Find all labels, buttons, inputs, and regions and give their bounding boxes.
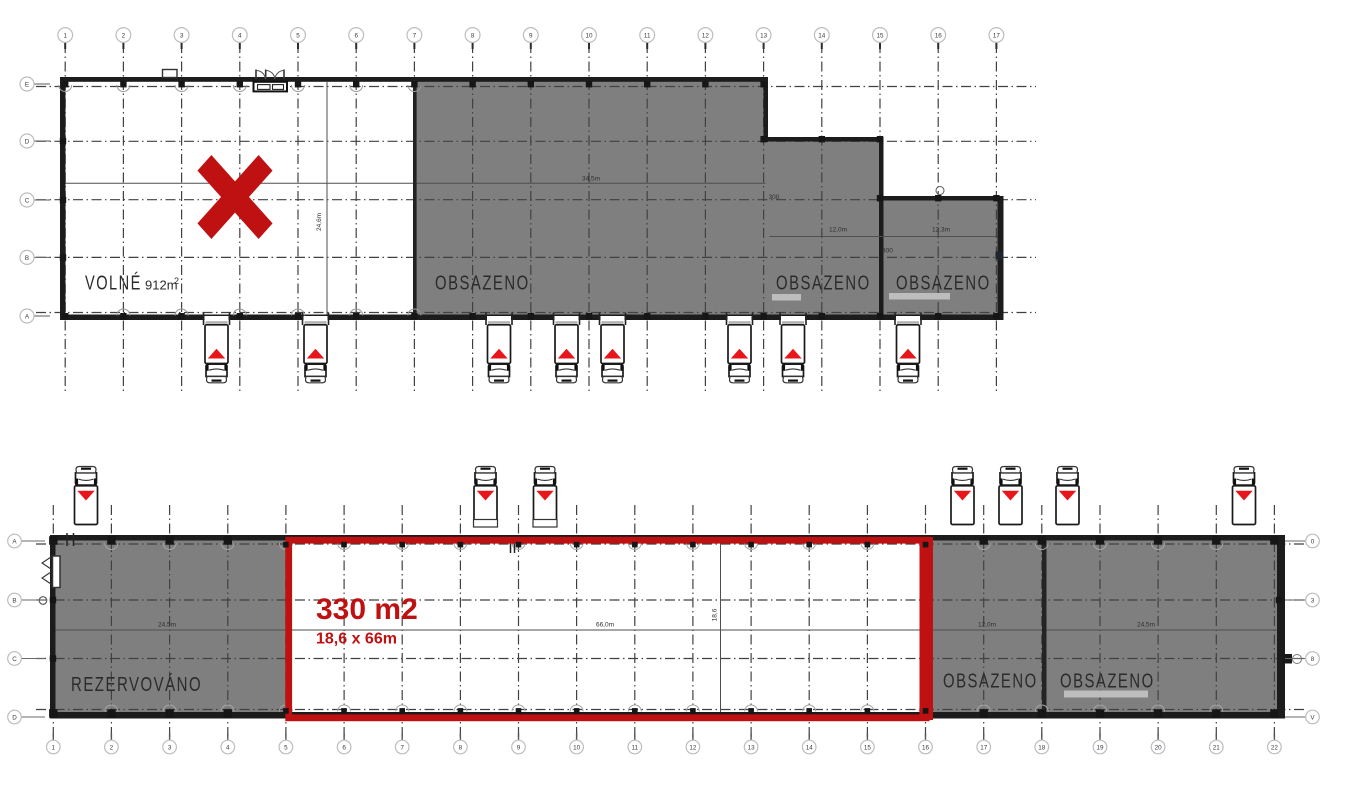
svg-text:8: 8 <box>1311 656 1315 663</box>
svg-text:6: 6 <box>354 33 358 40</box>
svg-text:15: 15 <box>876 33 884 40</box>
svg-text:300: 300 <box>769 194 780 201</box>
svg-text:13: 13 <box>748 745 756 752</box>
svg-text:20: 20 <box>1155 745 1163 752</box>
svg-text:24,5m: 24,5m <box>1137 622 1155 629</box>
svg-text:13: 13 <box>760 33 768 40</box>
svg-text:14: 14 <box>806 745 814 752</box>
svg-text:8: 8 <box>471 33 475 40</box>
svg-text:3: 3 <box>1311 598 1315 605</box>
svg-text:3: 3 <box>168 745 172 752</box>
svg-text:7: 7 <box>413 33 417 40</box>
svg-text:10: 10 <box>573 745 581 752</box>
svg-text:12,3m: 12,3m <box>932 227 950 234</box>
svg-text:17: 17 <box>993 33 1001 40</box>
svg-text:16: 16 <box>922 745 930 752</box>
svg-text:5: 5 <box>296 33 300 40</box>
svg-text:OBSAZENO: OBSAZENO <box>896 271 991 294</box>
svg-text:4: 4 <box>226 745 230 752</box>
svg-text:D: D <box>12 715 17 722</box>
svg-text:VOLNÉ: VOLNÉ <box>85 271 142 294</box>
svg-text:REZERVOVÁNO: REZERVOVÁNO <box>71 673 202 696</box>
svg-text:912m: 912m <box>145 278 178 293</box>
svg-text:16: 16 <box>935 33 943 40</box>
svg-text:9: 9 <box>529 33 533 40</box>
svg-text:15: 15 <box>864 745 872 752</box>
svg-text:10: 10 <box>585 33 593 40</box>
svg-text:D: D <box>25 139 30 146</box>
svg-text:22: 22 <box>1271 745 1279 752</box>
svg-text:2: 2 <box>174 276 179 286</box>
svg-text:6: 6 <box>342 745 346 752</box>
svg-text:12: 12 <box>702 33 710 40</box>
svg-text:9: 9 <box>517 745 521 752</box>
svg-text:5: 5 <box>284 745 288 752</box>
svg-text:14: 14 <box>818 33 826 40</box>
svg-text:34,5m: 34,5m <box>582 176 600 183</box>
svg-text:1: 1 <box>63 33 67 40</box>
svg-text:11: 11 <box>632 745 639 752</box>
svg-text:12,0m: 12,0m <box>978 622 996 629</box>
svg-text:300: 300 <box>882 248 893 255</box>
svg-text:C: C <box>12 656 17 663</box>
svg-text:E: E <box>25 82 29 89</box>
svg-text:B: B <box>25 255 29 262</box>
svg-text:OBSAZENO: OBSAZENO <box>776 271 871 294</box>
svg-text:66,0m: 66,0m <box>596 622 614 629</box>
svg-text:17: 17 <box>980 745 988 752</box>
svg-text:18,6 x 66m: 18,6 x 66m <box>316 631 397 648</box>
svg-text:OBSAZENO: OBSAZENO <box>1060 669 1155 692</box>
svg-text:330 m2: 330 m2 <box>316 593 418 626</box>
svg-text:3: 3 <box>180 33 184 40</box>
svg-text:18: 18 <box>1038 745 1046 752</box>
svg-text:24,5m: 24,5m <box>158 622 176 629</box>
svg-text:12,0m: 12,0m <box>829 227 847 234</box>
svg-text:OBSAZENO: OBSAZENO <box>943 669 1038 692</box>
svg-text:18,6: 18,6 <box>712 608 719 621</box>
svg-text:21: 21 <box>1213 745 1221 752</box>
svg-text:C: C <box>25 198 30 205</box>
svg-text:2: 2 <box>110 745 114 752</box>
svg-text:0: 0 <box>1311 539 1315 546</box>
svg-text:2: 2 <box>122 33 126 40</box>
svg-text:OBSAZENO: OBSAZENO <box>435 271 530 294</box>
svg-text:1: 1 <box>52 745 56 752</box>
svg-text:19: 19 <box>1096 745 1104 752</box>
svg-text:4: 4 <box>238 33 242 40</box>
svg-text:11: 11 <box>644 33 651 40</box>
svg-text:B: B <box>12 598 16 605</box>
svg-text:24,6m: 24,6m <box>316 213 323 231</box>
svg-text:8: 8 <box>459 745 463 752</box>
svg-text:7: 7 <box>400 745 404 752</box>
svg-text:12: 12 <box>689 745 697 752</box>
